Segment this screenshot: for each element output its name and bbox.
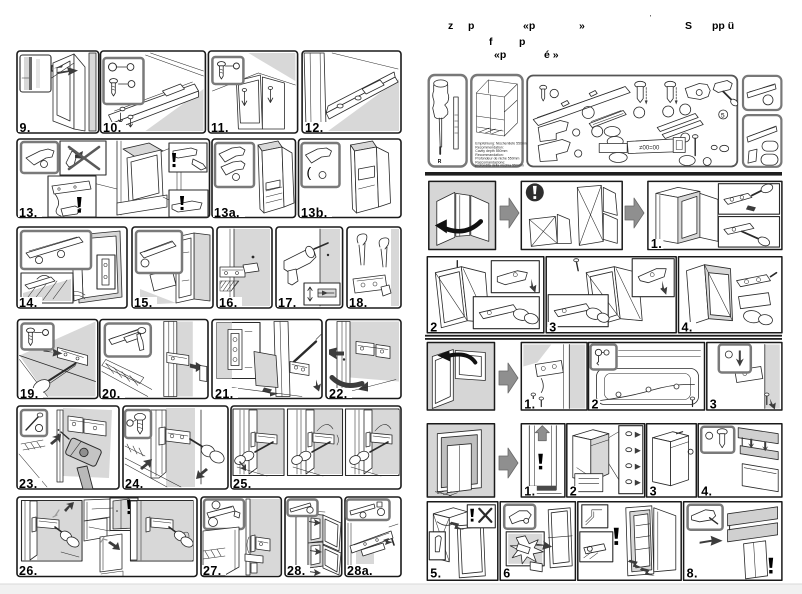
svg-text:21.: 21. [215,387,234,401]
svg-text:26.: 26. [19,564,38,578]
svg-text:1.: 1. [651,237,662,251]
svg-text:1.: 1. [524,485,535,499]
svg-text:«p: «p [523,20,535,32]
svg-text:19.: 19. [20,387,39,401]
svg-text:»: » [579,20,585,32]
svg-text:4.: 4. [701,485,712,499]
svg-text:S: S [685,20,692,32]
svg-text:24.: 24. [125,477,144,491]
svg-text:22.: 22. [329,387,348,401]
svg-text:13b.: 13b. [301,206,328,220]
svg-text:': ' [650,15,651,22]
svg-text:11.: 11. [211,121,229,135]
svg-text:profondità della nicchia 550mm: profondità della nicchia 550mm [475,164,524,168]
svg-text:p: p [519,36,525,48]
svg-text:R: R [438,159,442,165]
svg-text:6: 6 [503,567,510,581]
svg-text:3: 3 [710,398,717,412]
svg-text:z: z [448,20,453,32]
svg-text:p: p [468,20,474,32]
svg-text:27.: 27. [203,564,222,578]
svg-text:17.: 17. [278,296,297,310]
svg-text:«p: «p [494,49,506,61]
svg-text:≠00=00: ≠00=00 [639,146,660,152]
svg-text:pp ü: pp ü [712,20,734,32]
svg-text:13a.: 13a. [214,206,240,220]
svg-text:28.: 28. [287,564,306,578]
svg-text:28a.: 28a. [347,564,373,578]
svg-text:5.: 5. [430,567,441,581]
svg-text:8.: 8. [687,567,698,581]
svg-text:14.: 14. [19,296,38,310]
svg-text:2: 2 [592,398,599,412]
svg-text:4.: 4. [682,321,693,335]
svg-text:3: 3 [549,321,556,335]
svg-text:5: 5 [721,112,725,119]
svg-text:f: f [489,36,493,48]
svg-text:1.: 1. [524,398,535,412]
svg-text:23.: 23. [19,477,38,491]
svg-text:20.: 20. [102,387,121,401]
svg-text:9.: 9. [20,121,31,135]
svg-text:2: 2 [570,485,577,499]
svg-text:é »: é » [544,49,559,61]
svg-text:12.: 12. [305,121,324,135]
svg-text:15.: 15. [134,296,153,310]
svg-text:16.: 16. [219,296,238,310]
svg-text:(: ( [307,164,312,180]
svg-text:13.: 13. [19,206,38,220]
svg-text:18.: 18. [349,296,368,310]
svg-text:25.: 25. [233,477,252,491]
svg-text:3: 3 [650,485,657,499]
svg-text:2: 2 [430,321,437,335]
svg-text:10.: 10. [103,121,122,135]
